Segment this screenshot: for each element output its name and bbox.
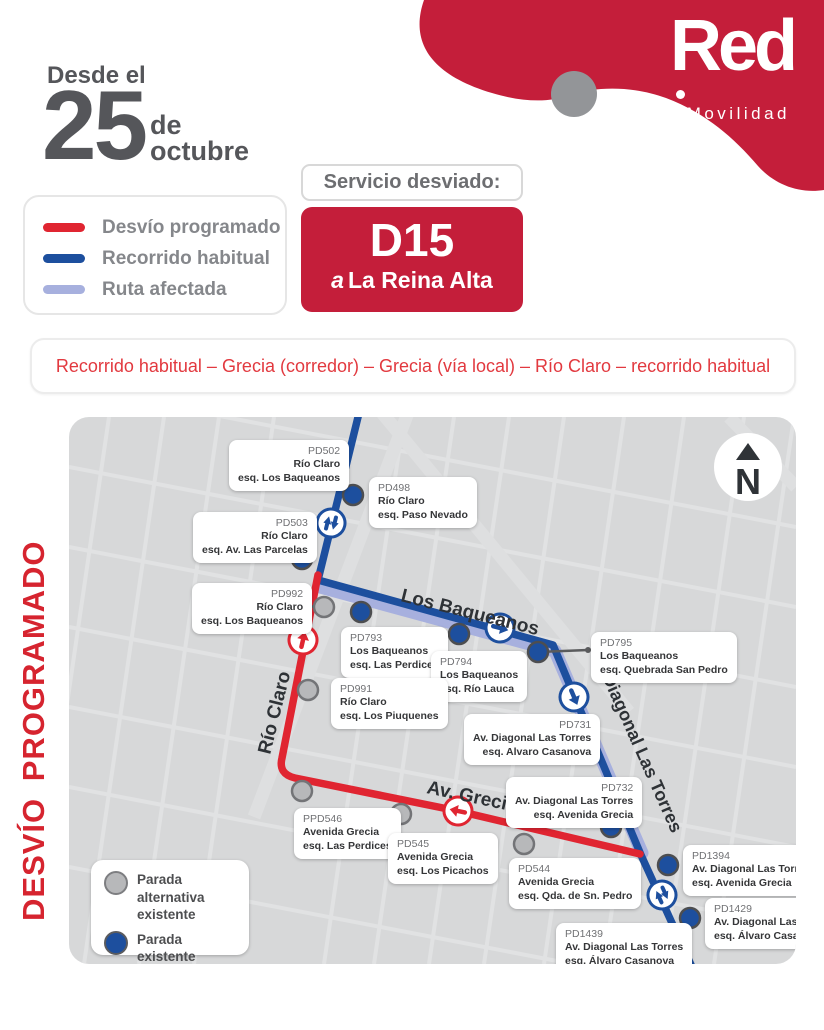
stop-code: PD793 (350, 632, 439, 645)
stop-card-PD503: PD503 Río Claro esq. Av. Las Parcelas (193, 512, 317, 563)
stop-card-PD1439: PD1439 Av. Diagonal Las Torres esq. Álva… (556, 923, 692, 964)
stop-corner: esq. Los Baqueanos (201, 615, 303, 628)
stop-card-PD1429: PD1429 Av. Diagonal Las Torres esq. Álva… (705, 898, 796, 949)
stop-street: Av. Diagonal Las Torres (692, 863, 796, 876)
stop-street: Av. Diagonal Las Torres (473, 732, 591, 745)
stop-corner: esq. Río Lauca (440, 683, 518, 696)
legend-label: Desvío programado (102, 217, 280, 239)
stop-street: Av. Diagonal Las Torres (714, 916, 796, 929)
stop-dot-PD992 (314, 597, 334, 617)
stop-corner: esq. Av. Las Parcelas (202, 544, 308, 557)
blue-line-swatch (43, 254, 85, 263)
legend-label: Ruta afectada (102, 279, 227, 301)
stop-dot-PD544 (514, 834, 534, 854)
stop-street: Río Claro (202, 530, 308, 543)
stop-card-PD732: PD732 Av. Diagonal Las Torres esq. Aveni… (506, 777, 642, 828)
stop-code: PD795 (600, 637, 728, 650)
stop-corner: esq. Álvaro Casanova (565, 955, 683, 964)
side-title-desvio-programado: DESVÍO PROGRAMADO (16, 505, 52, 921)
stop-dot-PD1394 (658, 855, 678, 875)
purple-line-swatch (43, 285, 85, 294)
stop-code: PD794 (440, 656, 518, 669)
legend-line: existente (137, 949, 196, 964)
stop-code: PD502 (238, 445, 340, 458)
date-day: 25 (42, 80, 145, 170)
stop-code: PD498 (378, 482, 468, 495)
stop-code: PD992 (201, 588, 303, 601)
service-diverted-pill: Servicio desviado: (301, 164, 523, 201)
stop-code: PD1429 (714, 903, 796, 916)
stop-dot-PPD546 (292, 781, 312, 801)
stop-corner: esq. Los Baqueanos (238, 472, 340, 485)
route-map: Los Baqueanos Río Claro Av. Grecia Diago… (69, 417, 796, 964)
stop-corner: esq. Avenida Grecia (692, 877, 796, 890)
service-code: D15 (301, 216, 523, 264)
service-dest-prefix: a (331, 267, 344, 293)
alternative-stop-icon (104, 871, 128, 895)
stop-corner: esq. Avenida Grecia (515, 809, 633, 822)
stop-code: PD1394 (692, 850, 796, 863)
stop-street: Río Claro (238, 458, 340, 471)
stop-street: Los Baqueanos (600, 650, 728, 663)
legend-row-habitual: Recorrido habitual (43, 243, 285, 274)
stop-code: PD503 (202, 517, 308, 530)
date-month: octubre (150, 136, 249, 167)
stop-corner: esq. Alvaro Casanova (473, 746, 591, 759)
map-stop-legend: Parada alternativa existente Parada exis… (91, 860, 249, 955)
map-legend-label: Parada alternativa existente (137, 871, 249, 924)
stop-dot-PD795 (528, 642, 548, 662)
stop-code: PD545 (397, 838, 489, 851)
stop-street: Av. Diagonal Las Torres (515, 795, 633, 808)
red-logo: Red (670, 10, 794, 82)
stop-code: PD991 (340, 683, 439, 696)
gray-circle-accent (551, 71, 597, 117)
stop-street: Avenida Grecia (518, 876, 632, 889)
legend-row-desvio: Desvío programado (43, 212, 285, 243)
stop-dot-PD794 (449, 624, 469, 644)
stop-card-PD1394: PD1394 Av. Diagonal Las Torres esq. Aven… (683, 845, 796, 896)
legend-line: existente (137, 907, 196, 922)
service-destination: aLa Reina Alta (301, 267, 523, 294)
stop-corner: esq. Qda. de Sn. Pedro (518, 890, 632, 903)
stop-code: PD1439 (565, 928, 683, 941)
map-legend-label: Parada existente (137, 931, 196, 964)
stop-card-PD544: PD544 Avenida Grecia esq. Qda. de Sn. Pe… (509, 858, 641, 909)
stop-card-PPD546: PPD546 Avenida Grecia esq. Las Perdices (294, 808, 401, 859)
stop-card-PD545: PD545 Avenida Grecia esq. Los Picachos (388, 833, 498, 884)
stop-card-PD498: PD498 Río Claro esq. Paso Nevado (369, 477, 477, 528)
legend-row-afectada: Ruta afectada (43, 274, 285, 305)
map-legend-row-existing: Parada existente (104, 931, 249, 964)
stop-code: PD732 (515, 782, 633, 795)
stop-street: Los Baqueanos (350, 645, 439, 658)
stop-street: Avenida Grecia (397, 851, 489, 864)
existing-stop-icon (104, 931, 128, 955)
stop-corner: esq. Álvaro Casanova (714, 930, 796, 943)
stop-card-PD992: PD992 Río Claro esq. Los Baqueanos (192, 583, 312, 634)
service-dest-name: La Reina Alta (348, 267, 493, 293)
stop-street: Río Claro (340, 696, 439, 709)
stop-street: Río Claro (378, 495, 468, 508)
stop-corner: esq. Los Picachos (397, 865, 489, 878)
stop-card-PD731: PD731 Av. Diagonal Las Torres esq. Alvar… (464, 714, 600, 765)
service-badge: D15 aLa Reina Alta (301, 207, 523, 312)
stop-code: PD544 (518, 863, 632, 876)
stop-code: PPD546 (303, 813, 392, 826)
legend-line: Parada alternativa (137, 872, 205, 905)
stop-corner: esq. Paso Nevado (378, 509, 468, 522)
compass-n-label: N (735, 461, 761, 502)
stop-street: Río Claro (201, 601, 303, 614)
stop-corner: esq. Las Perdices (350, 659, 439, 672)
stop-code: PD731 (473, 719, 591, 732)
two-way-arrow-icon (314, 506, 348, 540)
stop-card-PD991: PD991 Río Claro esq. Los Piuquenes (331, 678, 448, 729)
stop-corner: esq. Quebrada San Pedro (600, 664, 728, 677)
stop-street: Av. Diagonal Las Torres (565, 941, 683, 954)
stop-corner: esq. Las Perdices (303, 840, 392, 853)
stop-card-PD502: PD502 Río Claro esq. Los Baqueanos (229, 440, 349, 491)
legend-label: Recorrido habitual (102, 248, 270, 270)
stop-dot-PD793 (351, 602, 371, 622)
route-legend: Desvío programado Recorrido habitual Rut… (23, 195, 287, 315)
red-logo-dot (676, 90, 685, 99)
red-line-swatch (43, 223, 85, 232)
route-summary-bar: Recorrido habitual – Grecia (corredor) –… (30, 338, 796, 394)
map-legend-row-alternative: Parada alternativa existente (104, 871, 249, 924)
red-logo-subtitle: Movilidad (687, 104, 790, 124)
stop-street: Avenida Grecia (303, 826, 392, 839)
compass: N (714, 433, 782, 502)
legend-line: Parada (137, 932, 182, 947)
stop-street: Los Baqueanos (440, 669, 518, 682)
stop-corner: esq. Los Piuquenes (340, 710, 439, 723)
stop-dot-PD991 (298, 680, 318, 700)
stop-card-PD795: PD795 Los Baqueanos esq. Quebrada San Pe… (591, 632, 737, 683)
